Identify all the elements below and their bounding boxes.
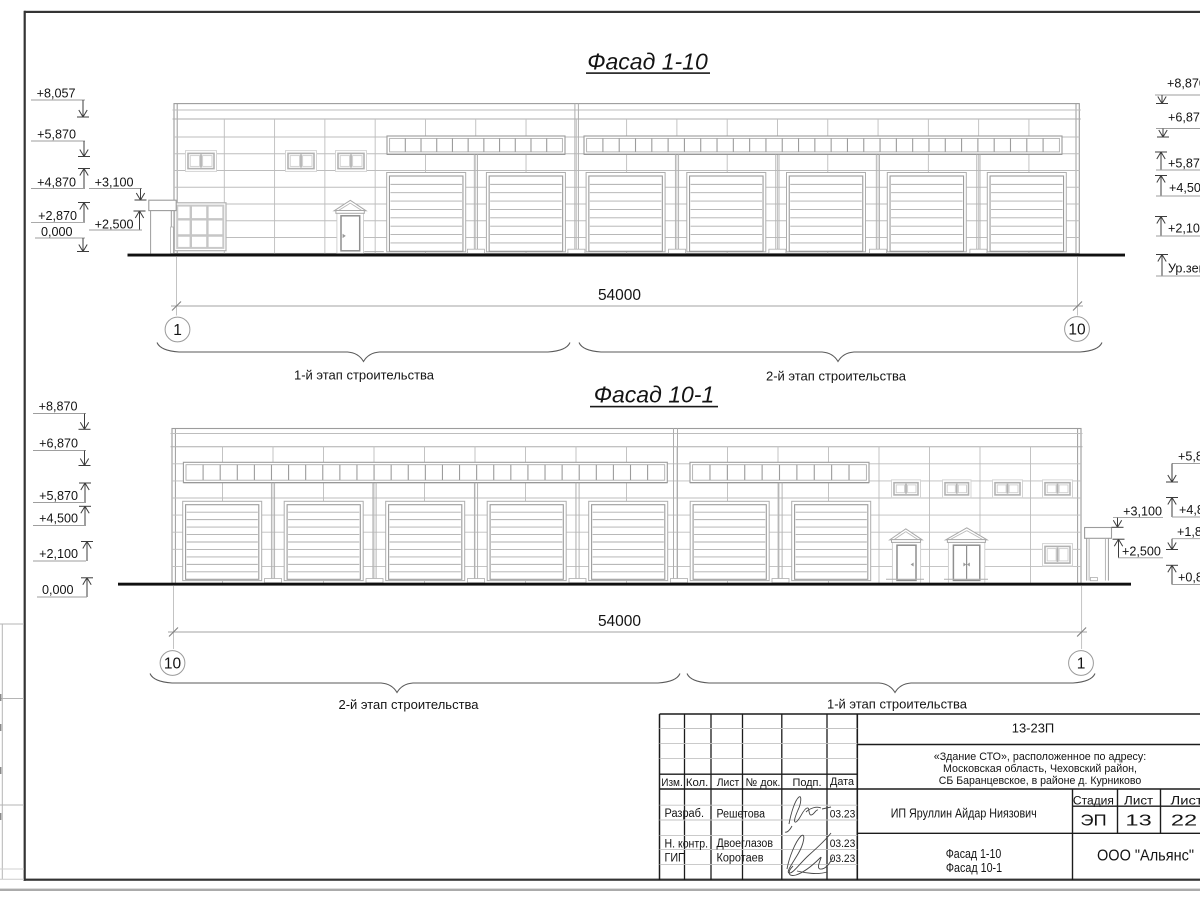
svg-text:+4,870: +4,870 [37,175,76,189]
svg-text:+0,870: +0,870 [1178,571,1200,585]
svg-text:Лист: Лист [717,777,739,789]
svg-text:1: 1 [1077,655,1086,672]
svg-text:03.23: 03.23 [830,853,856,865]
svg-text:54000: 54000 [598,287,641,304]
svg-text:+3,100: +3,100 [95,175,134,189]
svg-text:Подп.: Подп. [793,777,822,789]
svg-text:Лист: Лист [1124,795,1154,807]
svg-text:+1,870: +1,870 [1177,525,1200,539]
svg-text:Фасад 10-1: Фасад 10-1 [946,860,1002,875]
svg-text:1-й этап строительства: 1-й этап строительства [294,368,435,383]
svg-text:Изм.: Изм. [661,777,683,789]
svg-text:Листов: Листов [1171,795,1200,807]
svg-text:Дата: Дата [830,776,855,788]
svg-text:+5,870: +5,870 [1178,450,1200,464]
svg-text:ИП Яруллин Айдар Ниязович: ИП Яруллин Айдар Ниязович [891,805,1037,820]
svg-text:10: 10 [1068,321,1086,338]
svg-text:ООО "Альянс": ООО "Альянс" [1097,848,1194,865]
svg-text:0,000: 0,000 [41,225,73,239]
svg-text:+2,870: +2,870 [38,209,77,223]
svg-text:54000: 54000 [598,613,641,630]
svg-text:1: 1 [173,322,182,339]
svg-text:№ док.: № док. [746,777,781,789]
svg-text:«Здание СТО», расположенное по: «Здание СТО», расположенное по адресу: [934,751,1147,763]
svg-text:+2,500: +2,500 [95,217,134,231]
svg-text:13-23П: 13-23П [1012,722,1055,736]
svg-text:+4,500: +4,500 [1169,181,1200,195]
svg-text:Фасад 1-10: Фасад 1-10 [946,846,1002,861]
svg-text:+4,870: +4,870 [1179,503,1200,517]
svg-text:+6,870: +6,870 [39,437,78,451]
svg-text:ЭП: ЭП [1080,812,1106,829]
svg-text:Разраб.: Разраб. [665,808,705,820]
svg-text:+5,870: +5,870 [37,128,76,142]
svg-text:+8,057: +8,057 [37,87,76,101]
svg-text:+6,870: +6,870 [1168,111,1200,125]
svg-text:Фасад 10-1: Фасад 10-1 [594,382,715,408]
svg-text:0,000: 0,000 [42,583,74,597]
svg-text:2-й этап строительства: 2-й этап строительства [766,369,907,384]
svg-text:+8,870: +8,870 [39,400,78,414]
svg-text:Московская область, Чеховский: Московская область, Чеховский район, [943,763,1137,775]
svg-text:13: 13 [1125,812,1151,829]
svg-text:+5,870: +5,870 [39,489,78,503]
svg-text:03.23: 03.23 [830,838,856,850]
svg-text:Кол.: Кол. [686,777,709,789]
svg-text:СБ Баранцевское, в районе д. К: СБ Баранцевское, в районе д. Курниково [939,775,1142,787]
svg-text:+2,100: +2,100 [39,547,78,561]
svg-text:+4,500: +4,500 [39,511,78,525]
svg-text:Решетова: Решетова [717,808,766,820]
svg-text:Стадия: Стадия [1073,795,1114,807]
svg-text:+8,870: +8,870 [1167,77,1200,91]
svg-text:1-й этап строительства: 1-й этап строительства [827,697,968,712]
svg-text:Коротаев: Коротаев [717,853,764,865]
svg-text:03.23: 03.23 [830,808,856,820]
svg-text:+2,500: +2,500 [1122,544,1161,558]
svg-text:Двоеглазов: Двоеглазов [717,838,774,850]
svg-text:22: 22 [1171,812,1197,829]
svg-text:+3,100: +3,100 [1123,504,1162,518]
svg-text:2-й этап строительства: 2-й этап строительства [338,697,479,712]
svg-text:ГИП: ГИП [665,853,686,865]
svg-text:Фасад 1-10: Фасад 1-10 [587,49,708,75]
svg-text:Н. контр.: Н. контр. [665,839,709,851]
svg-text:Ур.земли: Ур.земли [1168,262,1200,276]
svg-text:10: 10 [164,655,182,672]
svg-text:+5,870: +5,870 [1168,157,1200,171]
svg-text:+2,100: +2,100 [1168,222,1200,236]
